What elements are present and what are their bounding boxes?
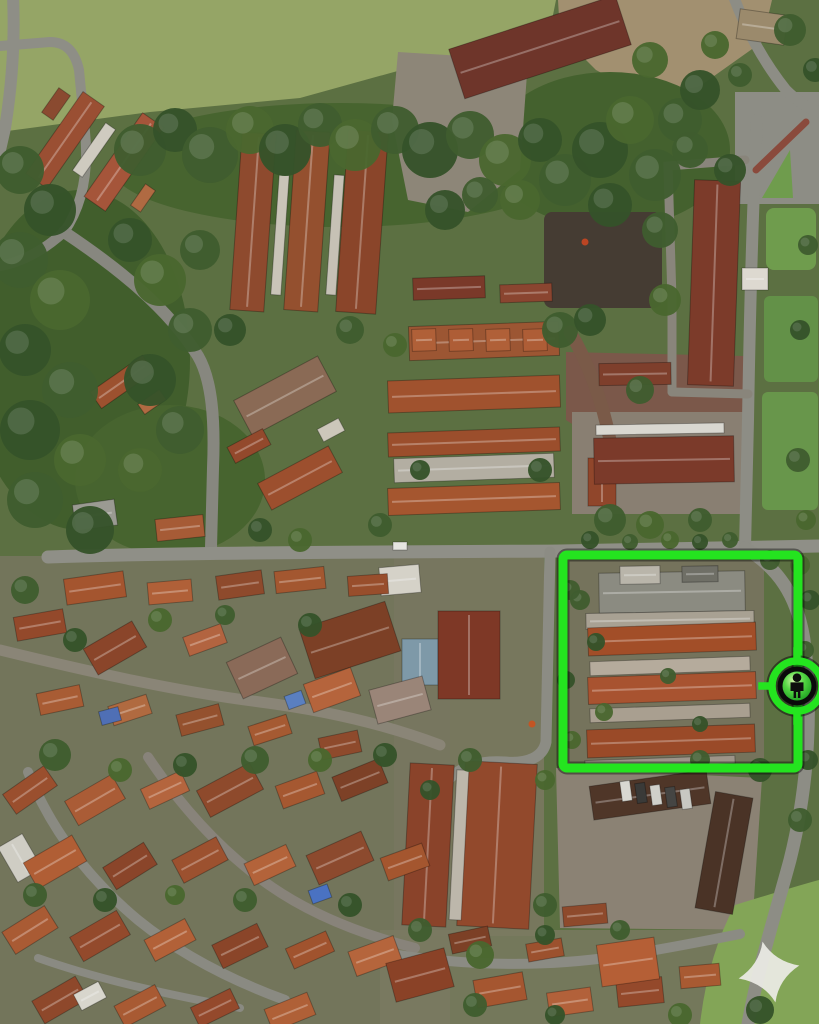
screenshot-root: [0, 0, 819, 1024]
satellite-map-image: [0, 0, 819, 1024]
